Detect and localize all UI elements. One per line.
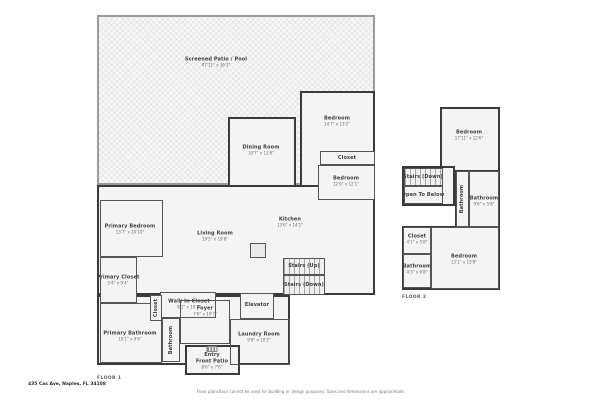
room-bedroom2: [318, 165, 375, 200]
room-elevator: [240, 293, 274, 319]
f2-room-bathroom-left: [403, 254, 431, 288]
floorplan-canvas: Screened Patio / Pool 47'11" x 36'3" Bed…: [0, 0, 600, 400]
room-closet1: [320, 151, 375, 165]
f2-room-bathroom-right: [469, 171, 499, 227]
floor1-label: FLOOR 1: [97, 376, 121, 381]
f2-room-bathroom-small: [456, 171, 469, 227]
room-primary-bedroom: [100, 200, 163, 257]
kitchen-island: [250, 243, 266, 258]
room-laundry: [230, 319, 290, 365]
f2-room-stairs-down: [404, 168, 443, 186]
f2-room-closet: [403, 227, 431, 254]
awning-icon: [207, 346, 218, 352]
room-closet2: [150, 295, 162, 321]
room-bathroom: [162, 318, 180, 362]
room-stairs-down: [283, 275, 325, 295]
room-primary-closet: [100, 257, 137, 303]
dining-block: [228, 117, 296, 187]
room-stairs-up: [283, 258, 325, 275]
f2-top-bedroom-block: [440, 107, 500, 172]
f2-room-open-to-below: [404, 186, 443, 204]
property-address: 435 Cas Ave, Naples, FL 34108: [28, 382, 106, 387]
f2-room-bedroom-bottom: [431, 227, 499, 289]
room-foyer: [180, 300, 230, 344]
floor2-label: FLOOR 2: [402, 295, 426, 300]
disclaimer-text: Floor plans/tour cannot be used for buil…: [196, 389, 406, 394]
